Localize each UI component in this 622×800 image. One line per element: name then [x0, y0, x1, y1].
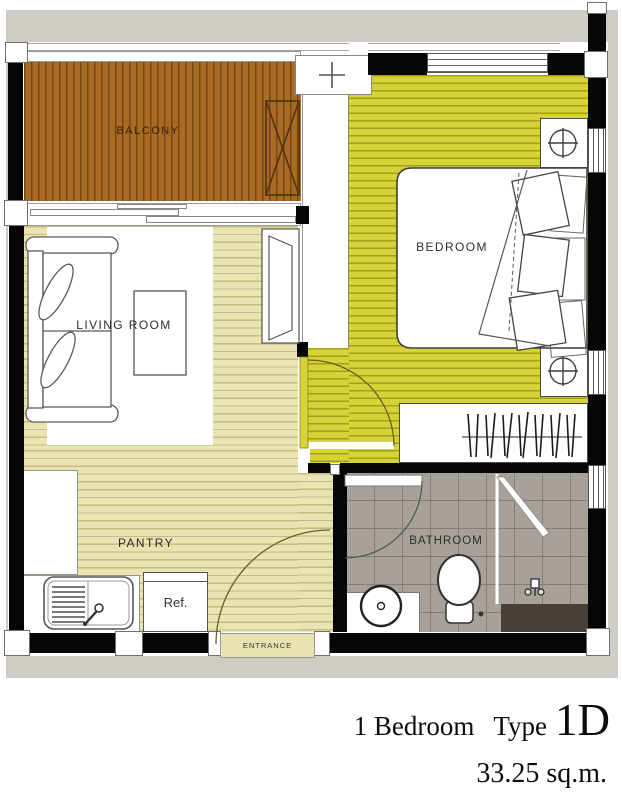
caption-type-word: Type: [493, 713, 547, 740]
wall-segment: [548, 53, 586, 75]
sliding-door-panel: [146, 216, 296, 223]
caption-type-code: 1D: [555, 698, 610, 743]
column-marker: [5, 42, 28, 63]
column-marker: [587, 2, 607, 14]
nightstand: [540, 345, 588, 397]
refrigerator-label: Ref.: [144, 595, 207, 610]
wall-segment: [28, 633, 115, 653]
column-marker: [115, 631, 143, 656]
column-marker: [330, 464, 340, 475]
kitchen-counter: [24, 575, 140, 632]
column-marker: [4, 630, 30, 656]
caption-area: 33.25 sq.m.: [476, 760, 607, 788]
bathroom-label: BATHROOM: [384, 535, 508, 547]
refrigerator: Ref.: [143, 572, 208, 632]
basin-counter: [347, 592, 420, 632]
caption-unit: 1 Bedroom: [354, 713, 475, 740]
wall-segment: [588, 77, 606, 128]
pantry-label: PANTRY: [84, 536, 208, 550]
building-edge-line: [14, 43, 560, 51]
sliding-door: [24, 203, 301, 226]
window: [588, 465, 606, 509]
wall-segment: [333, 473, 347, 632]
refrigerator-top-line: [144, 573, 207, 582]
balcony-railing: [24, 51, 301, 62]
caption-title: 1 Bedroom Type 1D: [354, 698, 610, 743]
column-marker: [314, 631, 330, 656]
window: [427, 53, 548, 73]
window: [588, 128, 606, 173]
wall-segment: [8, 62, 23, 201]
column-marker: [584, 51, 608, 78]
pantry-area-strip: [298, 473, 333, 632]
wall-segment: [588, 394, 606, 465]
door-threshold: [308, 442, 394, 449]
column-marker: [4, 200, 28, 226]
wall-segment: [588, 172, 606, 350]
bedroom-label: BEDROOM: [388, 240, 516, 254]
living-room-label: LIVING ROOM: [60, 318, 188, 332]
column-marker: [586, 628, 610, 656]
wardrobe: [399, 403, 588, 463]
rug: [47, 227, 213, 445]
wall-segment: [308, 463, 330, 473]
sliding-door-panel: [30, 209, 179, 216]
wall-segment: [588, 13, 606, 53]
nightstand: [540, 118, 588, 168]
wall-segment: [9, 226, 24, 632]
wall-segment: [143, 633, 208, 653]
shower-bench: [501, 604, 588, 632]
wall-segment: [297, 342, 308, 357]
kitchen-counter: [24, 470, 78, 575]
balcony-label: BALCONY: [100, 125, 196, 137]
wall-segment: [588, 508, 606, 630]
entrance-label: ENTRANCE: [243, 641, 292, 650]
wall-band: [302, 93, 349, 348]
entrance-strip: ENTRANCE: [220, 633, 315, 658]
wall-segment: [368, 53, 427, 75]
window: [588, 350, 606, 395]
floor-plan: Ref. ENTRANCE: [0, 0, 622, 800]
shaft-box: [295, 55, 372, 95]
wall-segment: [340, 463, 588, 473]
wall-segment: [330, 633, 588, 653]
wall-segment: [296, 206, 309, 224]
